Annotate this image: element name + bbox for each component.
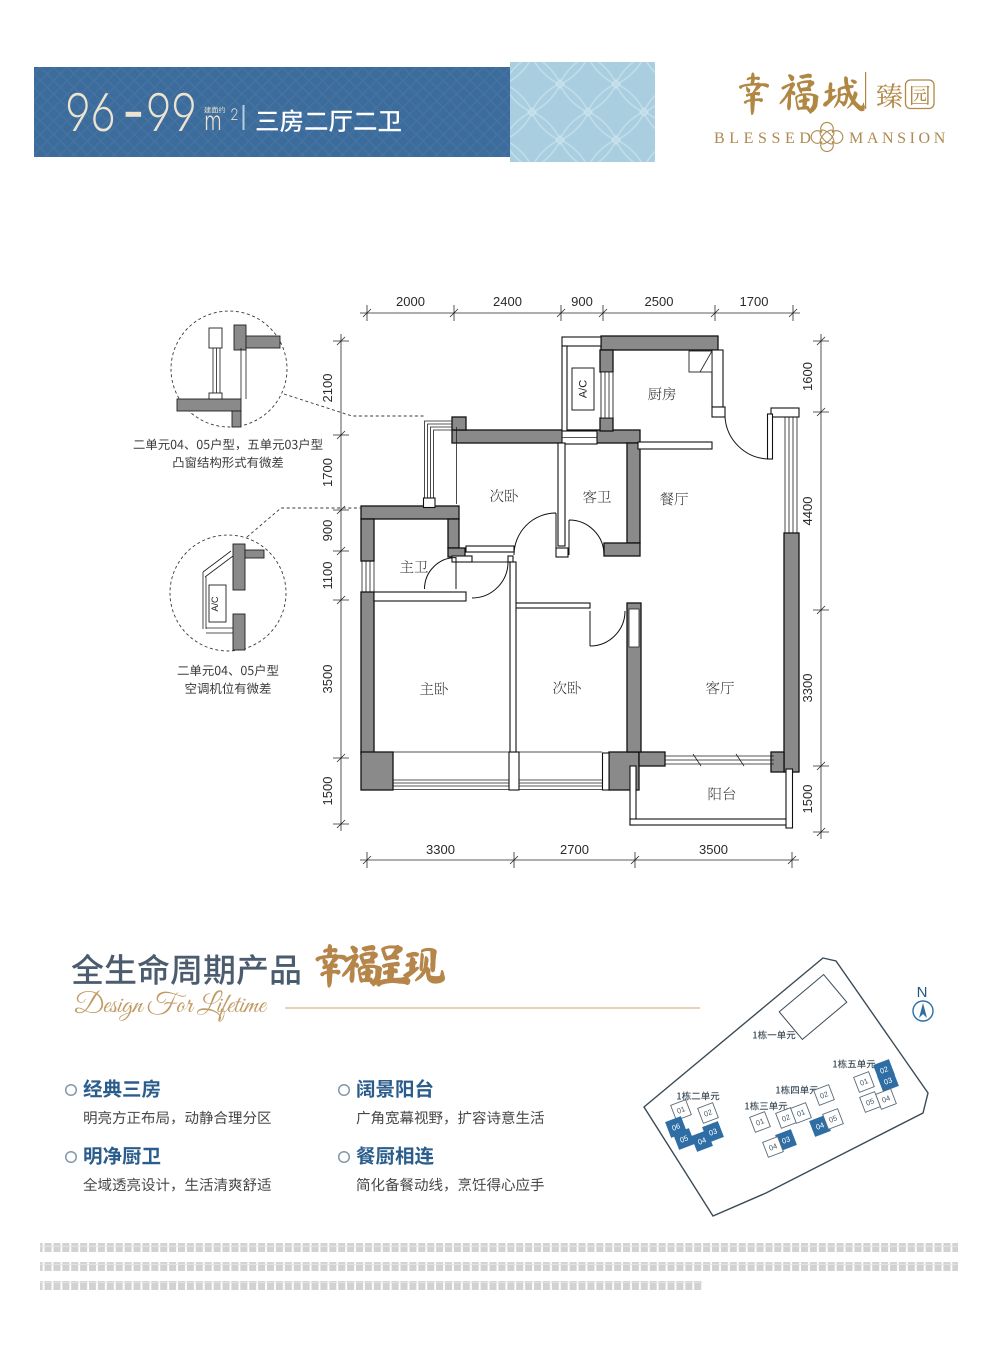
svg-text:N: N: [917, 984, 928, 1001]
svg-text:BLESSED: BLESSED: [714, 130, 816, 147]
svg-text:4400: 4400: [800, 497, 815, 526]
svg-text:1500: 1500: [800, 785, 815, 814]
svg-text:900: 900: [571, 294, 593, 309]
svg-text:2400: 2400: [493, 294, 522, 309]
svg-text:3300: 3300: [800, 674, 815, 703]
svg-text:2500: 2500: [645, 294, 674, 309]
svg-text:3500: 3500: [699, 842, 728, 857]
svg-text:900: 900: [320, 520, 335, 542]
svg-text:A/C: A/C: [210, 596, 220, 612]
svg-text:1700: 1700: [740, 294, 769, 309]
svg-text:A/C: A/C: [578, 380, 590, 398]
svg-text:1500: 1500: [320, 777, 335, 806]
svg-text:1700: 1700: [320, 458, 335, 487]
svg-text:1600: 1600: [800, 362, 815, 391]
svg-text:2100: 2100: [320, 374, 335, 403]
svg-text:2700: 2700: [560, 842, 589, 857]
svg-text:2000: 2000: [396, 294, 425, 309]
svg-text:3300: 3300: [426, 842, 455, 857]
svg-text:1100: 1100: [320, 562, 335, 590]
svg-text:3500: 3500: [320, 665, 335, 694]
svg-text:MANSION: MANSION: [849, 130, 949, 147]
